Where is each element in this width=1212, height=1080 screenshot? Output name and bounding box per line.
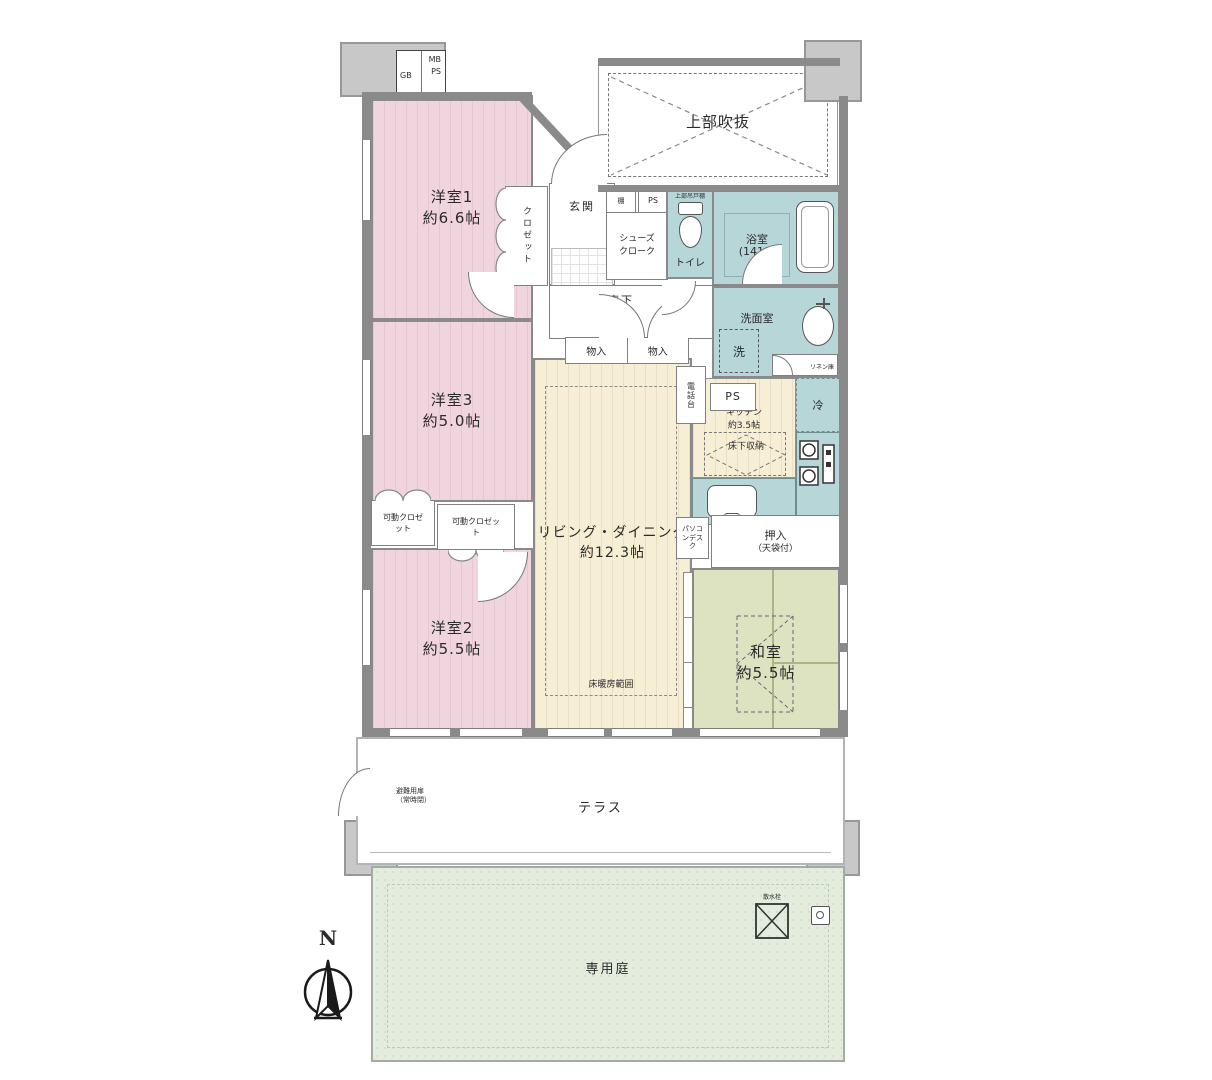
sink-basin-icon <box>802 306 834 346</box>
kitchen-area-label: 約3.5帖 <box>693 418 795 431</box>
movable-closet-right: 可動クロゼット <box>437 504 515 550</box>
washitsu-area: 約5.5帖 <box>737 663 796 684</box>
hall-storage-right-label: 物入 <box>648 343 668 358</box>
kitchen-sink <box>707 485 757 518</box>
window-left-2 <box>362 360 371 435</box>
toilet-bowl-icon <box>679 216 702 248</box>
bedroom3-area: 約5.0帖 <box>423 411 482 432</box>
escape-door-arc <box>338 768 370 816</box>
meter-box: GB MB PS <box>396 50 446 94</box>
sprinkler-box-icon <box>754 902 790 940</box>
washitsu-name: 和室 <box>750 642 782 663</box>
pc-desk-label: パソコンデスク <box>680 525 706 551</box>
atrium-bottom-wall <box>598 185 840 192</box>
movable-closet-left-scallops <box>375 489 431 501</box>
shoes-cloak: シューズクローク <box>606 212 668 280</box>
washroom-label: 洗面室 <box>722 310 792 326</box>
washitsu-sliding-doors <box>683 572 693 754</box>
hall-storage-left-label: 物入 <box>586 343 606 358</box>
escape-door-label: 避難用扉 （常時閉） <box>396 787 431 805</box>
washer-label: 洗 <box>733 343 745 360</box>
window-bottom-4 <box>612 728 672 737</box>
meter-ps-label: PS <box>431 67 441 77</box>
sprinkler-symbol: 散水栓 <box>753 894 791 940</box>
washer-space: 洗 <box>719 329 759 373</box>
top-wall <box>362 92 532 101</box>
bedroom1-closet: クロゼット <box>505 186 548 286</box>
compass-north-label: N <box>296 928 360 948</box>
atrium-label: 上部吹抜 <box>599 111 837 132</box>
entrance-label: 玄関 <box>550 198 614 214</box>
atrium-area: 上部吹抜 <box>598 64 838 186</box>
terrace-inner-line <box>370 852 831 853</box>
oshiire-note: （天袋付） <box>753 543 798 556</box>
bedroom1-area: 約6.6帖 <box>423 208 482 229</box>
window-left-1 <box>362 140 371 220</box>
linen-label: リネン庫 <box>810 362 834 371</box>
shoes-cloak-label: シューズクローク <box>616 233 658 258</box>
window-bottom-3 <box>548 728 604 737</box>
bathroom: 浴室 (1418) <box>712 189 840 286</box>
entrance-ps-label: PS <box>648 196 658 206</box>
linen-closet: リネン庫 <box>772 354 838 376</box>
floor-heating-label: 床暖房範囲 <box>546 677 676 690</box>
sprinkler-label: 散水栓 <box>753 894 791 902</box>
top-right-pillar <box>804 40 862 102</box>
meter-mb-label: MB <box>429 55 441 65</box>
bedroom1-closet-label: クロゼット <box>520 206 533 266</box>
toilet-label: トイレ <box>668 254 712 269</box>
movable-closet-left: 可動クロゼット <box>371 500 435 546</box>
hall-storage-right: 物入 <box>628 338 689 363</box>
shelf-label: 棚 <box>618 197 625 206</box>
private-garden: 専用庭 散水栓 <box>371 866 845 1062</box>
bedroom1-name: 洋室1 <box>431 187 474 208</box>
movable-closet-left-label: 可動クロゼット <box>381 512 425 534</box>
window-bottom-1 <box>390 728 450 737</box>
window-bottom-2 <box>460 728 522 737</box>
window-right-1 <box>839 585 848 643</box>
toilet-tank <box>678 202 703 215</box>
garden-outlet-box <box>811 906 830 925</box>
meter-gb-label: GB <box>400 71 412 81</box>
bedroom2-area: 約5.5帖 <box>423 639 482 660</box>
washroom: 洗面室 洗 リネン庫 <box>712 286 840 378</box>
toilet-upper-cabinet-label: 上部吊戸棚 <box>668 193 712 201</box>
stove-icon <box>797 433 838 523</box>
oshiire: 押入 （天袋付） <box>711 515 840 568</box>
floor-heating-range: 床暖房範囲 <box>545 386 677 696</box>
floor-plan: 上部吹抜 洋室1 約6.6帖 洋室3 約5.0帖 洋室2 約5.5帖 リビング・… <box>0 0 1212 1080</box>
bedroom3-name: 洋室3 <box>431 390 474 411</box>
escape-door-line2: （常時閉） <box>396 796 431 805</box>
window-bottom-5 <box>700 728 820 737</box>
entrance-ps-box: PS <box>638 189 668 213</box>
compass: N <box>296 928 360 1032</box>
underfloor-diamond <box>705 433 787 477</box>
oshiire-label: 押入 <box>765 528 787 543</box>
movable-closet-right-label: 可動クロゼット <box>452 516 500 538</box>
bedroom3: 洋室3 約5.0帖 <box>371 320 533 502</box>
pc-desk: パソコンデスク <box>676 517 709 559</box>
kitchen-ps-box: PS <box>710 383 756 411</box>
window-left-3 <box>362 590 371 665</box>
shelf-box: 棚 <box>606 189 636 213</box>
closet-scallop-doors <box>495 188 506 284</box>
phone-stand: 電話台 <box>676 366 706 424</box>
compass-icon <box>296 948 360 1030</box>
fridge-label: 冷 <box>813 397 824 413</box>
hall-storage: 物入 物入 <box>565 337 689 364</box>
kitchen-underfloor-storage: 床下収納 <box>704 432 786 476</box>
kitchen-underfloor-label: 床下収納 <box>726 442 766 454</box>
phone-stand-label: 電話台 <box>686 382 697 409</box>
toilet-room: 上部吊戸棚 トイレ <box>666 189 714 279</box>
fridge: 冷 <box>796 378 840 432</box>
garden-label: 専用庭 <box>373 958 843 977</box>
kitchen-counter-right <box>796 432 840 525</box>
escape-door-line1: 避難用扉 <box>396 787 431 796</box>
atrium-top-wall <box>598 58 840 66</box>
bathtub-icon <box>796 201 834 273</box>
window-right-2 <box>839 652 848 710</box>
linen-door-arc <box>773 355 793 375</box>
bedroom2-name: 洋室2 <box>431 618 474 639</box>
hall-storage-left: 物入 <box>566 338 628 363</box>
terrace: テラス 避難用扉 （常時閉） <box>356 737 845 865</box>
kitchen-ps-label: PS <box>725 389 741 404</box>
